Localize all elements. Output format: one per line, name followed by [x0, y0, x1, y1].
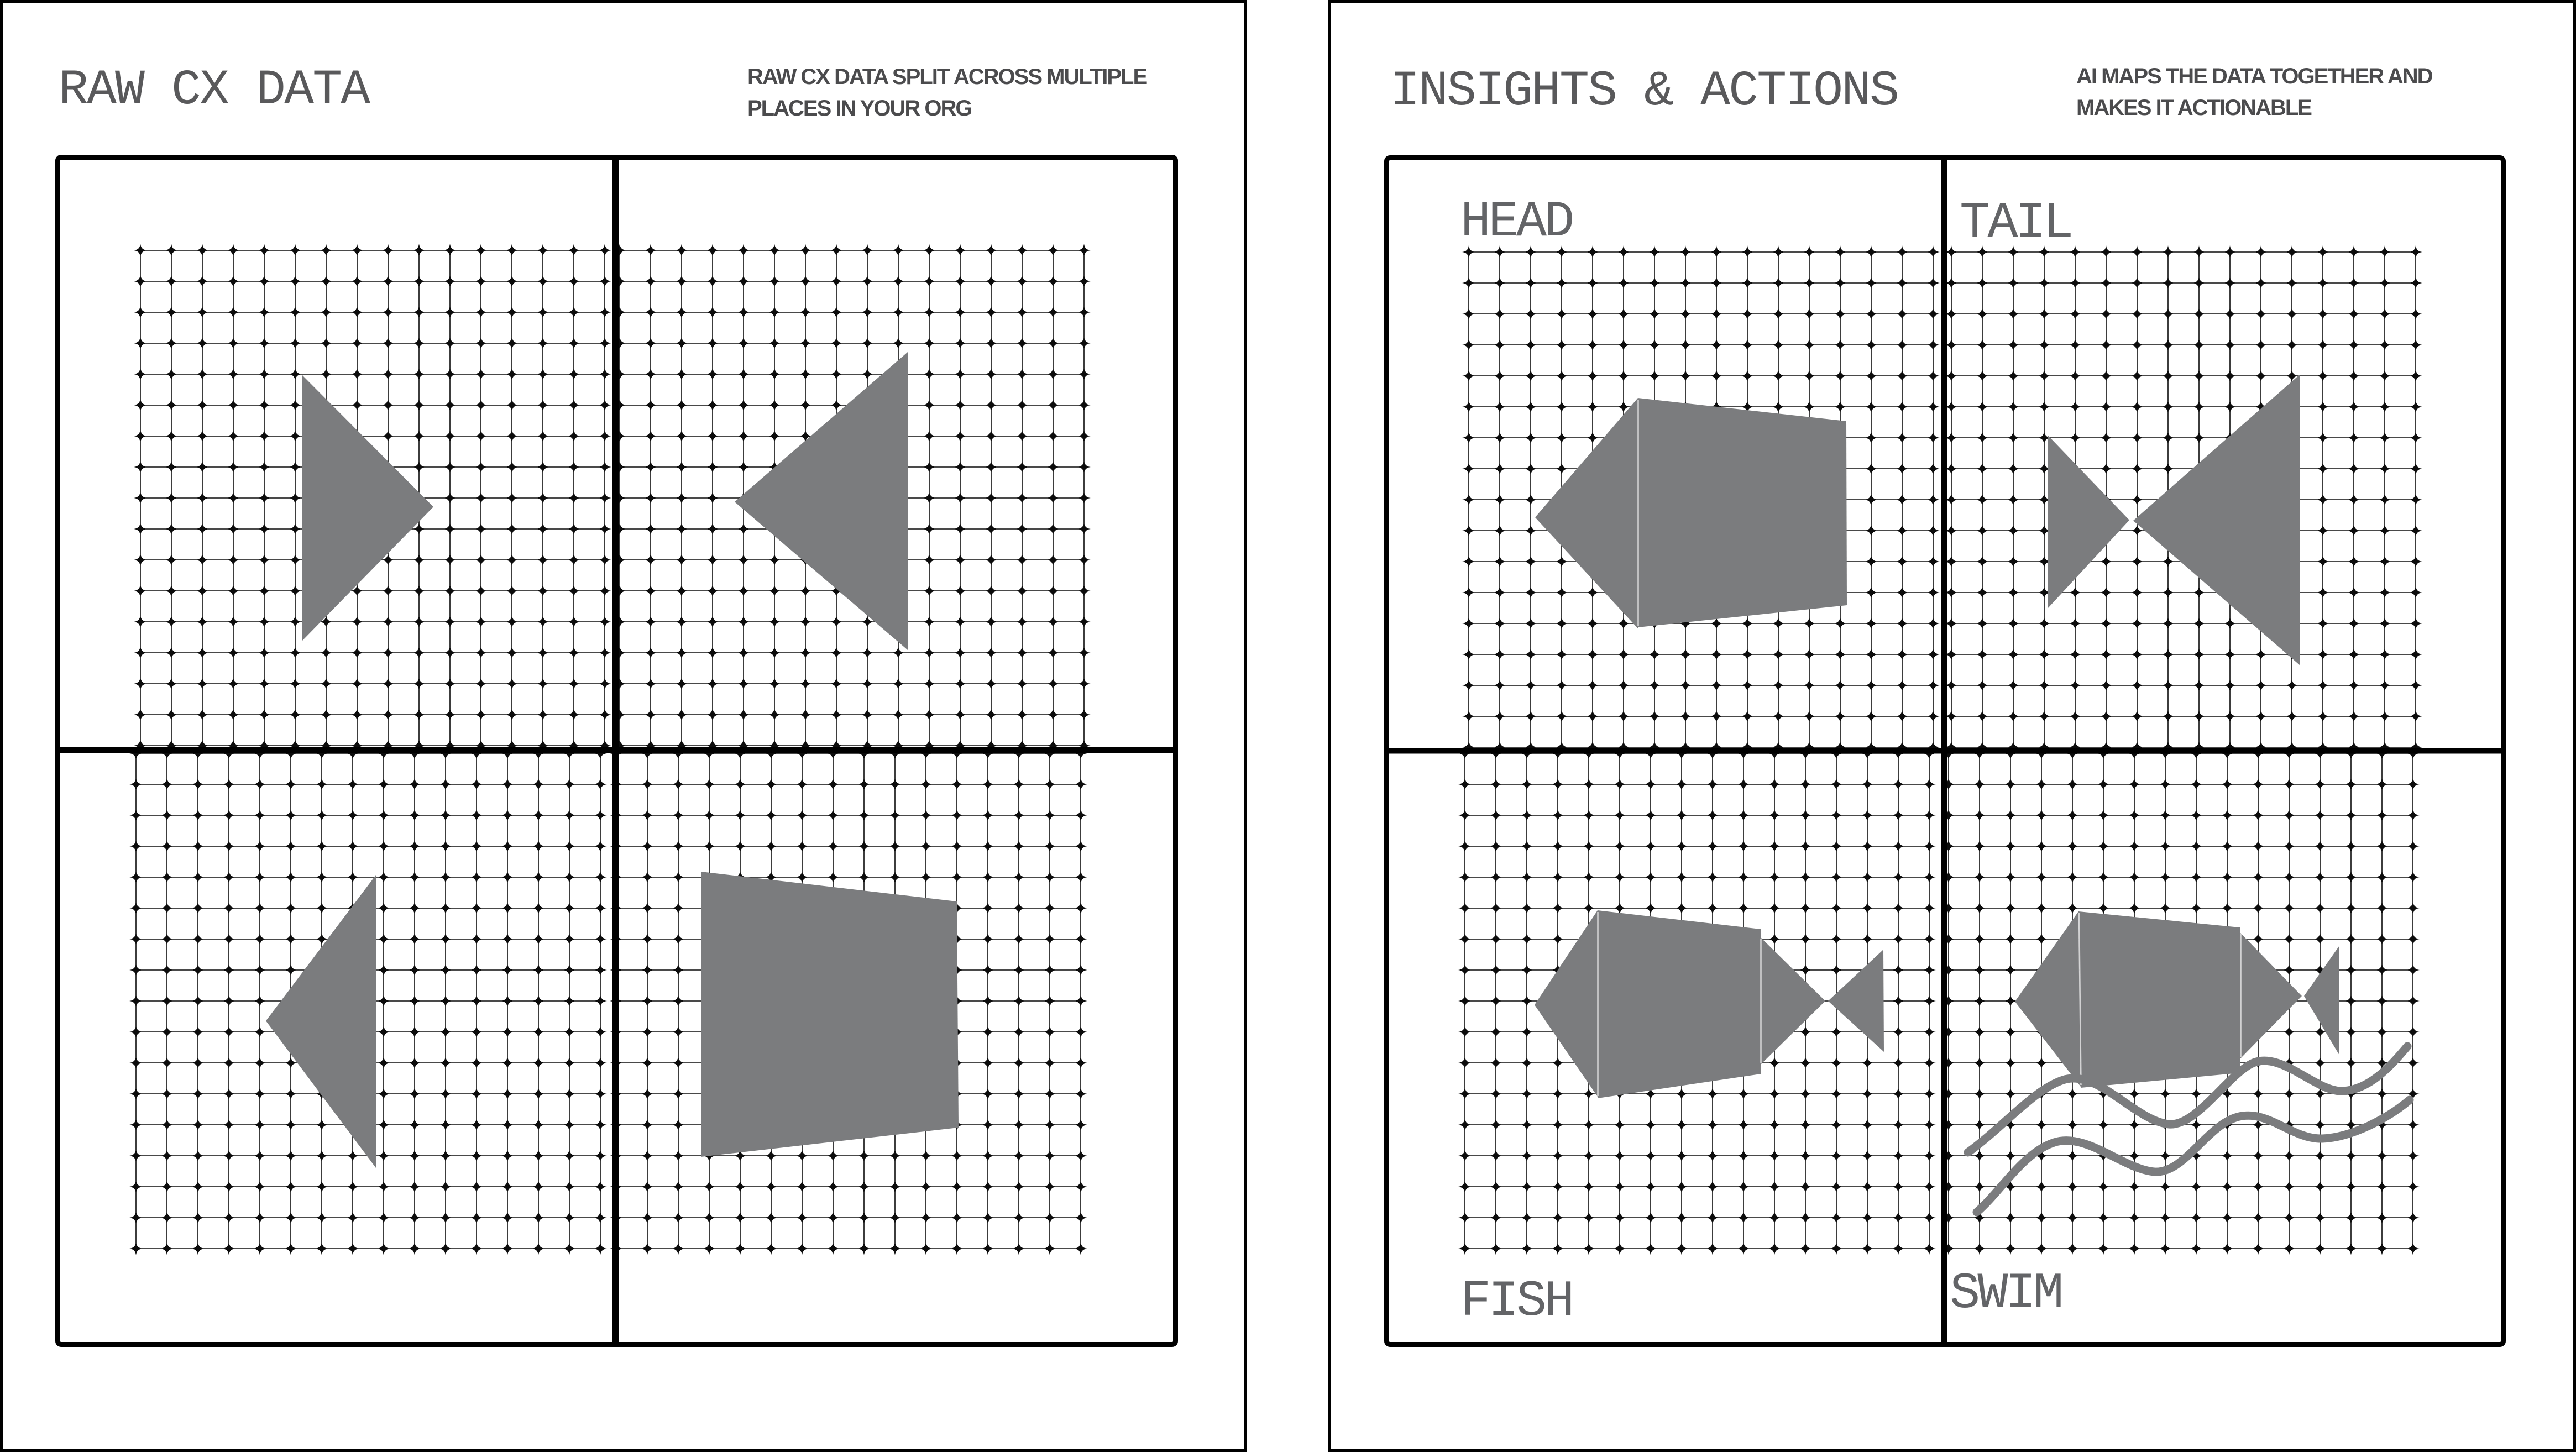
svg-text:RAW CX DATA: RAW CX DATA [59, 62, 370, 119]
svg-text:PLACES IN YOUR ORG: PLACES IN YOUR ORG [747, 96, 972, 120]
svg-text:SWIM: SWIM [1950, 1265, 2061, 1323]
svg-text:RAW CX DATA SPLIT ACROSS MULTI: RAW CX DATA SPLIT ACROSS MULTIPLE [747, 65, 1147, 89]
svg-text:HEAD: HEAD [1460, 193, 1572, 251]
svg-text:AI MAPS THE DATA TOGETHER AND: AI MAPS THE DATA TOGETHER AND [2076, 64, 2433, 88]
svg-text:FISH: FISH [1460, 1272, 1572, 1330]
svg-text:INSIGHTS & ACTIONS: INSIGHTS & ACTIONS [1390, 64, 1898, 120]
svg-text:TAIL: TAIL [1960, 194, 2071, 252]
svg-text:MAKES IT ACTIONABLE: MAKES IT ACTIONABLE [2076, 96, 2312, 120]
